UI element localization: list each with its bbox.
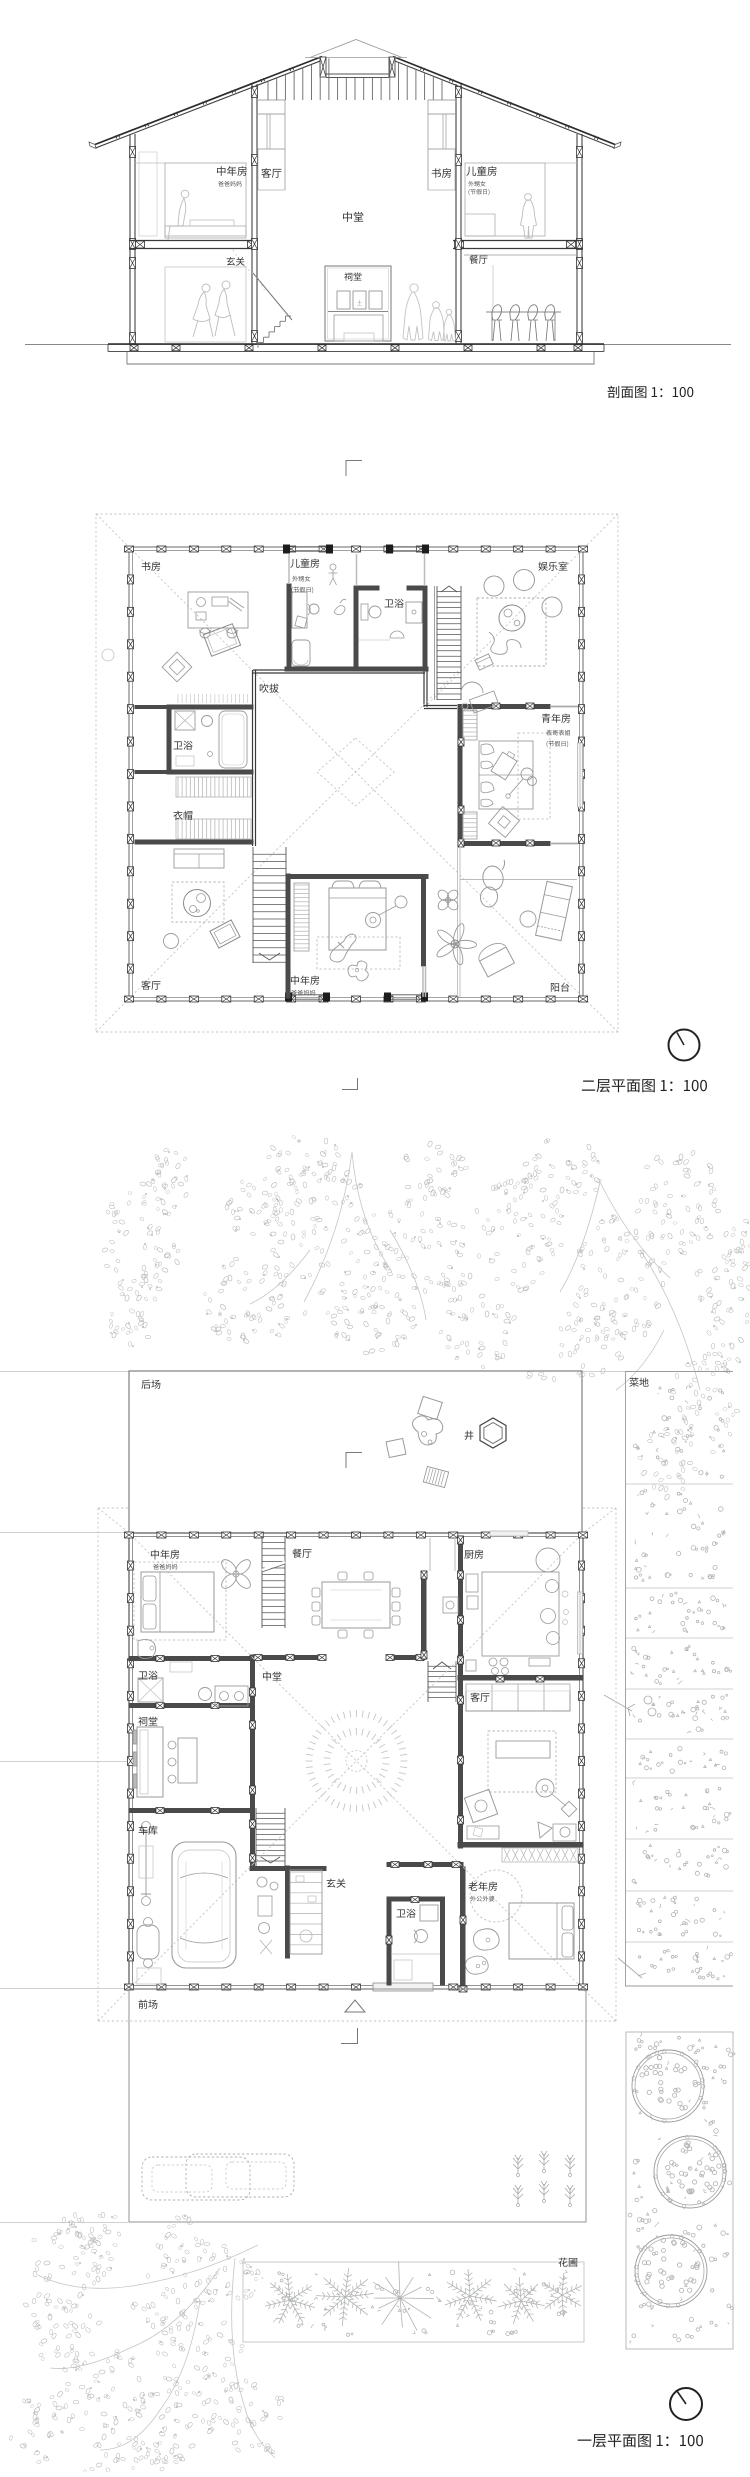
svg-text:二层平面图 1：100: 二层平面图 1：100	[581, 1075, 708, 1096]
svg-text:前场: 前场	[138, 1996, 158, 2011]
svg-text:中年房: 中年房	[290, 972, 320, 987]
svg-text:娱乐室: 娱乐室	[538, 558, 568, 573]
svg-text:客厅: 客厅	[141, 977, 161, 992]
svg-text:祠堂: 祠堂	[344, 270, 362, 283]
svg-text:青年房: 青年房	[541, 710, 571, 725]
svg-text:爸爸妈妈: 爸爸妈妈	[291, 988, 316, 997]
svg-text:祠堂: 祠堂	[138, 1713, 158, 1728]
svg-text:爸爸妈妈: 爸爸妈妈	[153, 1562, 178, 1571]
svg-text:剖面图 1：100: 剖面图 1：100	[607, 381, 694, 401]
svg-text:客厅: 客厅	[261, 166, 282, 181]
svg-text:中堂: 中堂	[262, 1668, 282, 1683]
svg-text:一层平面图 1：100: 一层平面图 1：100	[577, 2430, 704, 2451]
svg-text:餐厅: 餐厅	[292, 1545, 312, 1560]
svg-text:中堂: 中堂	[342, 209, 364, 225]
svg-text:卫浴: 卫浴	[384, 595, 404, 610]
svg-text:卫浴: 卫浴	[173, 737, 193, 752]
svg-text:中年房: 中年房	[150, 1546, 180, 1561]
svg-text:阳台: 阳台	[550, 979, 570, 994]
svg-text:(节假日): (节假日)	[546, 739, 569, 748]
svg-text:书房: 书房	[141, 558, 161, 573]
svg-text:(节假日): (节假日)	[291, 585, 314, 594]
svg-text:儿童房: 儿童房	[290, 555, 320, 570]
svg-text:爸爸妈妈: 爸爸妈妈	[218, 179, 242, 188]
svg-text:菜地: 菜地	[629, 1374, 649, 1389]
svg-text:厨房: 厨房	[464, 1546, 484, 1561]
svg-text:客厅: 客厅	[470, 1689, 490, 1704]
svg-text:土: 土	[357, 299, 363, 307]
svg-text:井: 井	[464, 1427, 474, 1442]
svg-text:外甥女: 外甥女	[292, 574, 311, 583]
svg-text:吹拔: 吹拔	[259, 680, 279, 695]
svg-text:老年房: 老年房	[468, 1878, 498, 1893]
svg-text:卫浴: 卫浴	[396, 1905, 416, 1920]
svg-text:外公外婆: 外公外婆	[470, 1894, 495, 1903]
svg-text:书房: 书房	[431, 166, 452, 181]
svg-text:(节假日): (节假日)	[468, 187, 490, 196]
svg-text:儿童房: 儿童房	[466, 164, 498, 179]
svg-text:卫浴: 卫浴	[138, 1667, 158, 1682]
svg-text:表哥表姐: 表哥表姐	[546, 728, 571, 737]
svg-text:玄关: 玄关	[226, 254, 246, 268]
svg-text:花圃: 花圃	[558, 2254, 578, 2269]
svg-text:餐厅: 餐厅	[469, 252, 489, 266]
svg-text:玄关: 玄关	[326, 1875, 346, 1890]
svg-text:衣帽: 衣帽	[173, 807, 193, 822]
svg-text:车库: 车库	[138, 1822, 158, 1837]
svg-text:后场: 后场	[141, 1376, 161, 1391]
svg-text:中年房: 中年房	[216, 164, 248, 179]
